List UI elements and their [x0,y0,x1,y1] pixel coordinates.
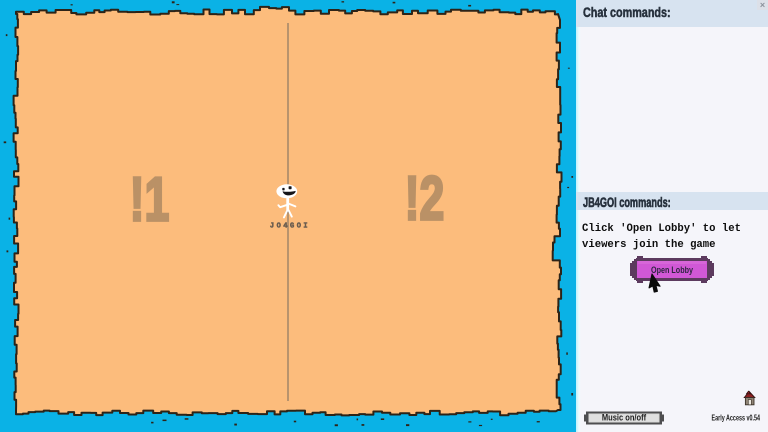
svg-text:Early Access v0.54: Early Access v0.54 [712,413,761,422]
svg-text:!2: !2 [405,164,445,233]
svg-text:!1: !1 [130,165,170,234]
svg-text:Music on/off: Music on/off [602,412,646,423]
svg-text:JO4GOI: JO4GOI [270,223,310,231]
